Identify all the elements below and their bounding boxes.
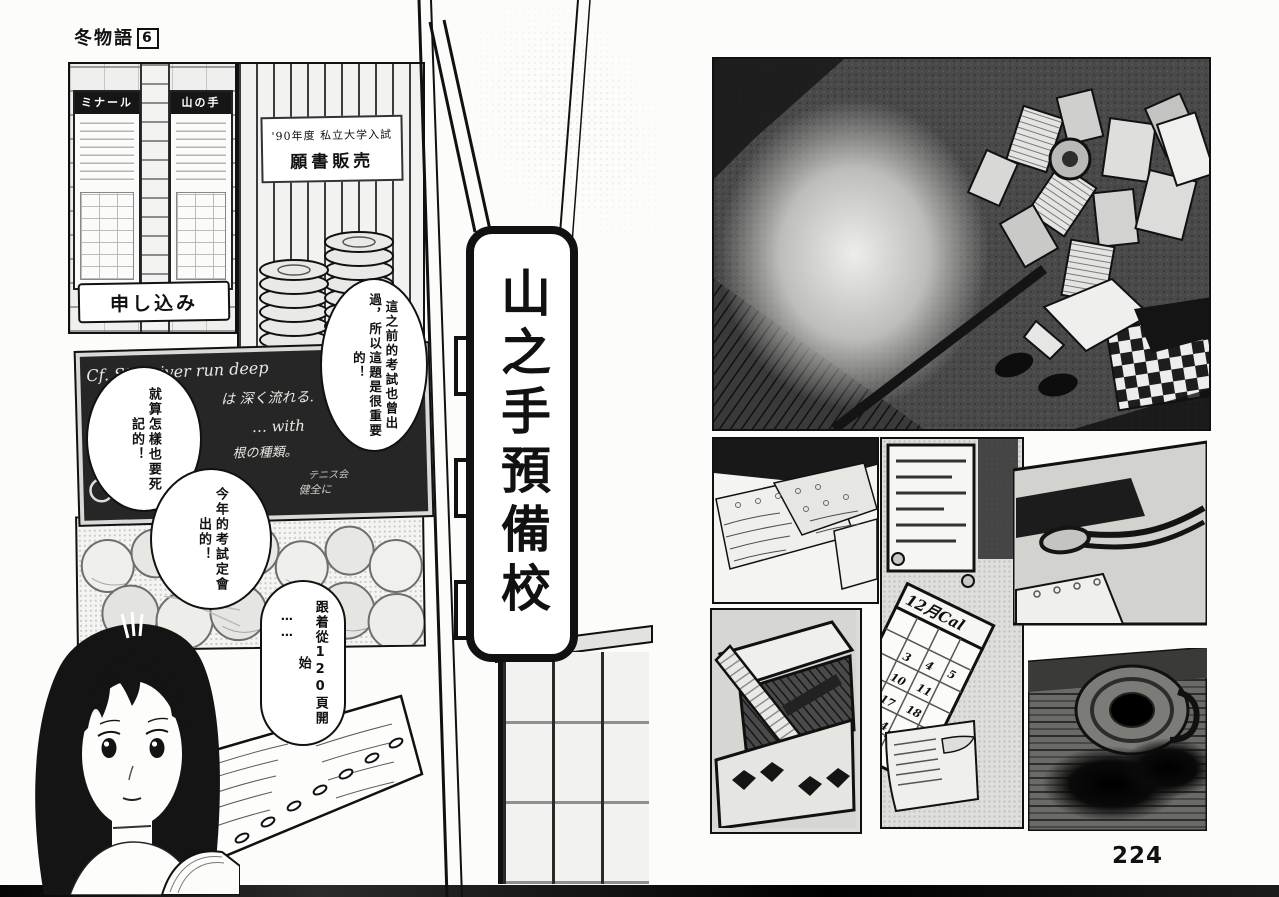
speech-bubble-2-text: 就算怎樣也要死記的！	[127, 380, 161, 498]
exam-form-sign-line2: 願書販売	[290, 146, 374, 172]
exam-form-sign-line1: '90年度 私立大学入試	[271, 125, 392, 143]
chalk-kinds-line: 根の種類。	[232, 441, 298, 462]
panel-calendar: 12月Cal 3 4 5 10 11 17 18 24 25	[880, 437, 1024, 829]
tape-dispenser	[1050, 139, 1090, 179]
chalk-japanese-gloss: は 深く流れる.	[221, 386, 314, 409]
chalk-fragment-2: 健全に	[298, 481, 331, 498]
prep-school-signboard: 山之手預備校	[466, 226, 578, 662]
panel-scattered-letters	[712, 437, 879, 604]
panel-dark-kettle	[1028, 648, 1207, 831]
exam-form-sign: '90年度 私立大学入試 願書販売	[260, 115, 403, 183]
speech-bubble-4: ⋯⋯ 跟着從120頁開始	[260, 580, 346, 746]
speech-bubble-1: 這之前的考試也曾出過，所以這題是很重要的！	[320, 278, 428, 452]
speech-bubble-3-text: 今年的考試定會出的！	[194, 483, 228, 595]
panel-pencil-box	[710, 608, 862, 834]
speech-bubble-1-text: 這之前的考試也曾出過，所以這題是很重要的！	[350, 290, 399, 440]
poster-left-table	[80, 192, 134, 280]
curled-paper	[886, 721, 978, 811]
poster-right-table	[176, 192, 226, 280]
speech-bubble-3: 今年的考試定會出的！	[150, 468, 272, 610]
poster-left-textlines	[80, 120, 134, 180]
series-title-text: 冬物語	[74, 28, 134, 49]
panel-desk-glasses	[1013, 440, 1207, 626]
girl-portrait	[14, 596, 240, 895]
chalk-fragment-1: テニス会	[308, 465, 348, 481]
dark-shelf-right	[978, 439, 1018, 559]
poster-left-header: ミナール	[75, 92, 139, 114]
prep-school-signboard-text: 山之手預備校	[497, 267, 547, 621]
speech-bubble-4-text: 跟着從120頁開始	[294, 593, 328, 733]
poster-right: 山の手	[169, 90, 233, 290]
manga-double-page-spread: 冬物語6 ミナール 山の手 申し込み '90年度 私立大学入試 願書販売	[0, 0, 1279, 897]
poster-right-textlines	[176, 120, 226, 180]
application-banner: 申し込み	[78, 281, 231, 324]
building-windows	[498, 652, 649, 884]
panel-poster-wall: ミナール 山の手 申し込み	[68, 62, 237, 334]
speech-bubble-4-leadin: ⋯⋯	[278, 598, 294, 658]
poster-left: ミナール	[73, 90, 141, 290]
futon-fuzzy-area	[719, 99, 989, 409]
page-number: 224	[1112, 843, 1163, 869]
series-title: 冬物語6	[74, 24, 159, 50]
schedule-sheet	[888, 445, 974, 587]
chalk-with-line: … with	[252, 417, 306, 436]
poster-right-header: 山の手	[171, 92, 231, 114]
panel-messy-room	[712, 57, 1211, 431]
volume-number-badge: 6	[137, 28, 159, 49]
